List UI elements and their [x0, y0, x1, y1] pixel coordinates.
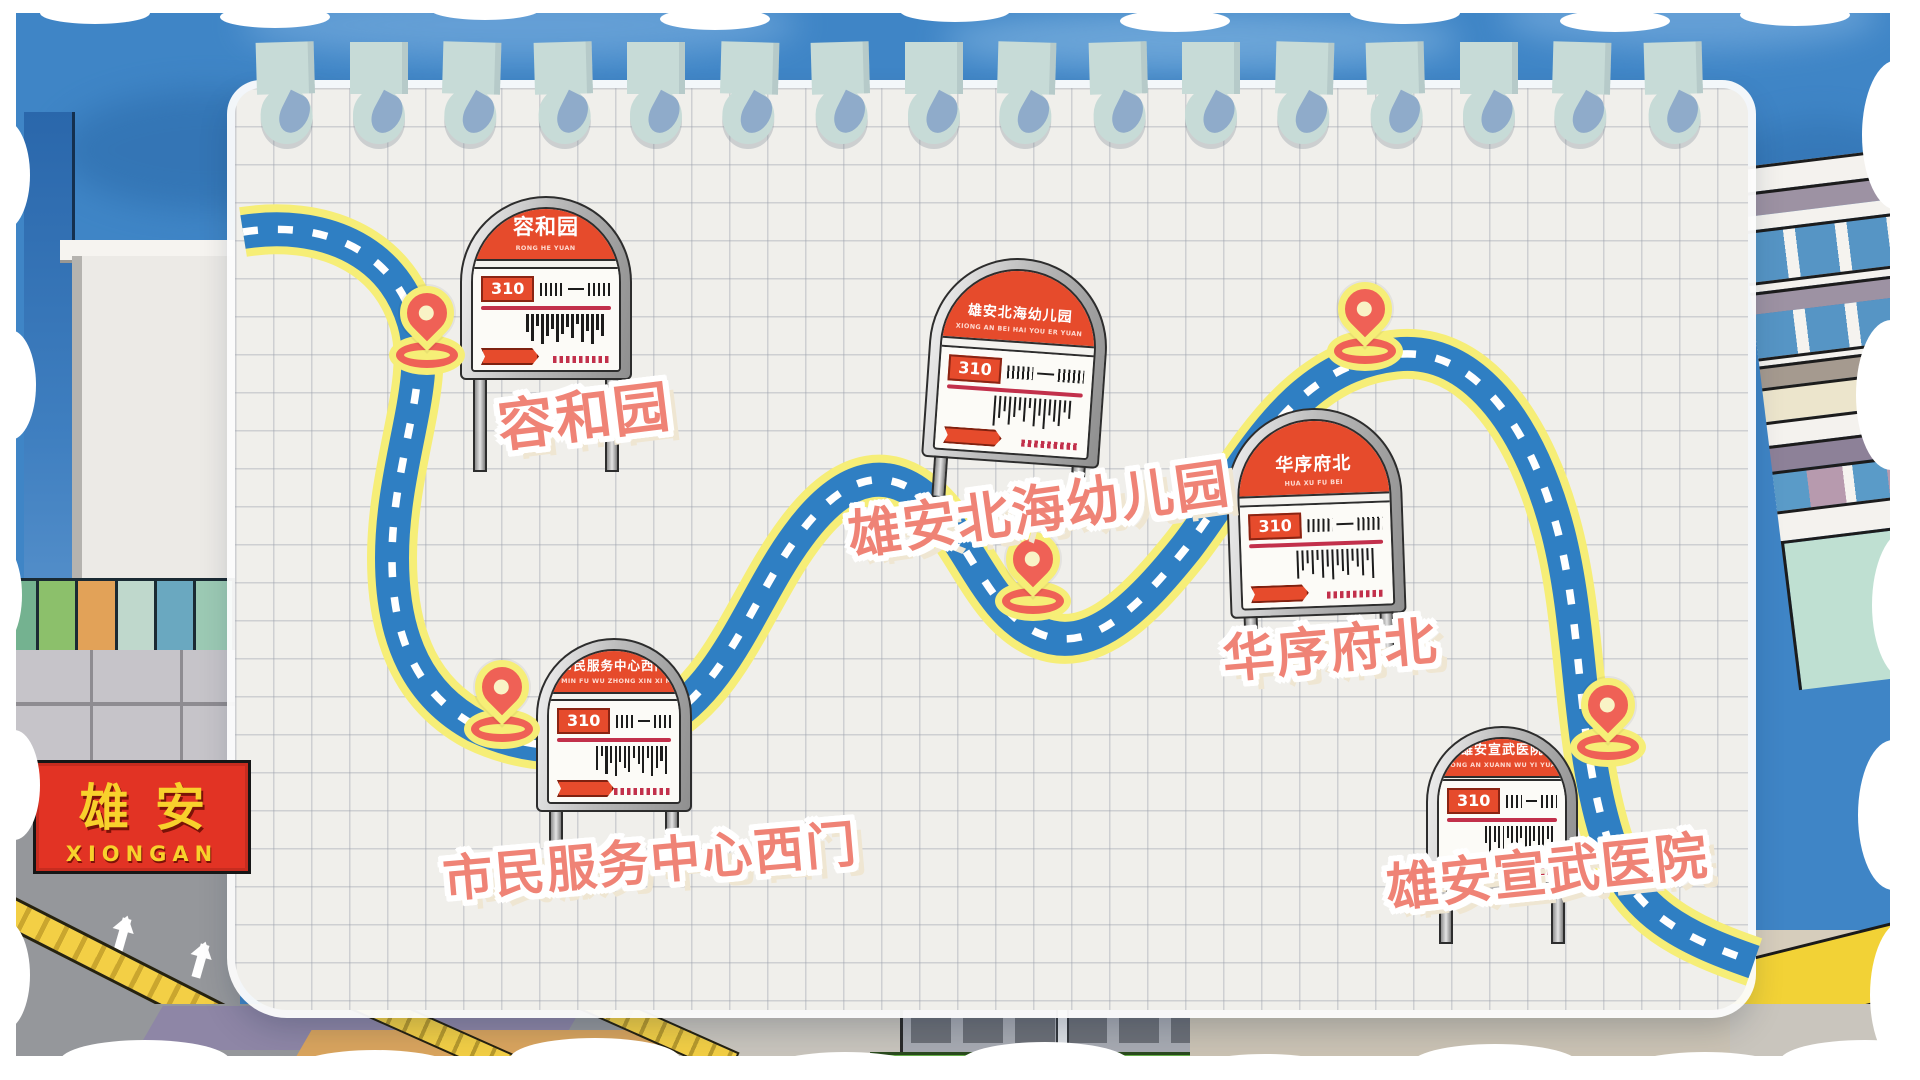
barcode-row	[1308, 516, 1383, 532]
location-pin-rongheyuan	[392, 286, 462, 368]
stop-name-cn: 雄安宣武医院	[1460, 739, 1544, 758]
red-arrow-tag	[481, 348, 539, 365]
sign-frame: 雄安北海幼儿园 XIONG AN BEI HAI YOU ER YUAN 310	[921, 252, 1113, 469]
red-tick-marks	[1021, 440, 1079, 451]
sign-header: 雄安宣武医院 XIONG AN XUANN WU YI YUAN	[1439, 739, 1565, 776]
sign-frame: 华序府北 HUA XU FU BEI 310	[1223, 405, 1406, 619]
stop-name-pinyin: XIONG AN XUANN WU YI YUAN	[1442, 761, 1562, 768]
binder-hole	[348, 42, 410, 144]
glass-tower	[24, 112, 75, 652]
sign-header: 雄安北海幼儿园 XIONG AN BEI HAI YOU ER YUAN	[943, 266, 1100, 346]
location-pin-civic-center	[467, 660, 537, 742]
binder-hole	[1549, 41, 1614, 145]
xiongan-gate-sign: 雄安 XIONGAN	[33, 760, 251, 874]
route-number-badge: 310	[557, 708, 610, 734]
binder-hole	[1458, 42, 1520, 144]
barcode-row	[540, 283, 611, 296]
barcode-block	[1296, 548, 1380, 581]
stop-name-cn: 雄安北海幼儿园	[967, 299, 1073, 326]
binder-hole	[1364, 41, 1429, 145]
location-pin-huaxufubei	[1330, 282, 1400, 364]
red-arrow-tag	[943, 426, 1002, 447]
binder-hole	[1641, 41, 1706, 145]
binder-hole	[439, 41, 504, 145]
stop-name-cn: 市民服务中心西门	[560, 655, 668, 674]
sign-header: 华序府北 HUA XU FU BEI	[1237, 418, 1389, 496]
sign-header: 市民服务中心西门 SHI MIN FU WU ZHONG XIN XI MEN	[549, 651, 679, 692]
barcode-row	[616, 715, 671, 728]
sign-gap	[473, 259, 619, 269]
sign-header: 容和园 RONG HE YUAN	[473, 209, 619, 259]
grunge-border-top	[0, 0, 1920, 13]
red-divider	[481, 306, 611, 310]
location-pin-xuanwu-hospital	[1573, 678, 1643, 760]
stop-name-cn: 容和园	[513, 211, 579, 241]
binder-hole	[625, 42, 687, 144]
binder-hole	[531, 41, 596, 145]
sign-gap	[549, 692, 679, 701]
bus-stop-sign-rongheyuan: 容和园 RONG HE YUAN 310	[460, 196, 632, 380]
barcode-row	[1506, 795, 1557, 808]
pin-drop-icon	[464, 649, 540, 725]
stop-name-pinyin: RONG HE YUAN	[516, 245, 576, 252]
sign-body: 310	[549, 701, 679, 802]
binder-hole	[809, 41, 874, 145]
red-arrow-tag	[557, 780, 614, 797]
red-divider	[1447, 818, 1557, 822]
route-number-badge: 310	[947, 354, 1002, 384]
red-divider	[1249, 540, 1383, 549]
grunge-splatter	[60, 1040, 230, 1080]
bus-stop-sign-civic-center-west-gate: 市民服务中心西门 SHI MIN FU WU ZHONG XIN XI MEN …	[536, 638, 692, 812]
barcode-block	[526, 314, 607, 344]
route-number-badge: 310	[1447, 788, 1500, 814]
barcode-block	[596, 746, 667, 776]
bus-stop-sign-beihai-kindergarten: 雄安北海幼儿园 XIONG AN BEI HAI YOU ER YUAN 310	[921, 252, 1113, 469]
sign-leg	[473, 374, 487, 472]
sign-body: 310	[935, 347, 1094, 458]
sign-body: 310	[1240, 502, 1393, 608]
sign-frame: 容和园 RONG HE YUAN 310	[460, 196, 632, 380]
grunge-border-bottom	[0, 1056, 1920, 1080]
binder-hole	[1180, 42, 1242, 144]
stop-name-pinyin: SHI MIN FU WU ZHONG XIN XI MEN	[547, 678, 681, 685]
grunge-splatter	[40, 2, 150, 24]
xiongan-sign-en: XIONGAN	[66, 842, 219, 866]
xiongan-sign-cn: 雄安	[53, 768, 231, 840]
route-number-badge: 310	[481, 276, 534, 302]
red-tick-marks	[553, 356, 611, 363]
binder-hole	[254, 41, 319, 145]
route-map-scene: 容和园 RONG HE YUAN 310 雄安北海	[0, 0, 1920, 1080]
red-arrow-tag	[1251, 584, 1310, 603]
binder-hole	[1271, 41, 1336, 145]
binder-hole	[903, 42, 965, 144]
sign-frame: 市民服务中心西门 SHI MIN FU WU ZHONG XIN XI MEN …	[536, 638, 692, 812]
binder-hole	[1086, 41, 1151, 145]
barcode-block	[992, 395, 1078, 431]
red-tick-marks	[614, 788, 671, 795]
binder-hole	[994, 41, 1059, 145]
pin-drop-icon	[1570, 667, 1646, 743]
route-number-badge: 310	[1248, 512, 1302, 540]
sign-body: 310	[473, 269, 619, 370]
bus-stop-sign-huaxufubei: 华序府北 HUA XU FU BEI 310	[1223, 405, 1406, 619]
glass-mosaic-band	[0, 578, 235, 656]
stop-name-cn: 华序府北	[1275, 448, 1352, 477]
binder-hole	[716, 41, 781, 145]
red-divider	[557, 738, 671, 742]
pin-drop-icon	[389, 275, 465, 351]
barcode-row	[1007, 365, 1084, 383]
stop-name-pinyin: HUA XU FU BEI	[1285, 478, 1344, 487]
panel-grid	[0, 650, 235, 768]
red-tick-marks	[1327, 590, 1385, 599]
pin-drop-icon	[1327, 271, 1403, 347]
